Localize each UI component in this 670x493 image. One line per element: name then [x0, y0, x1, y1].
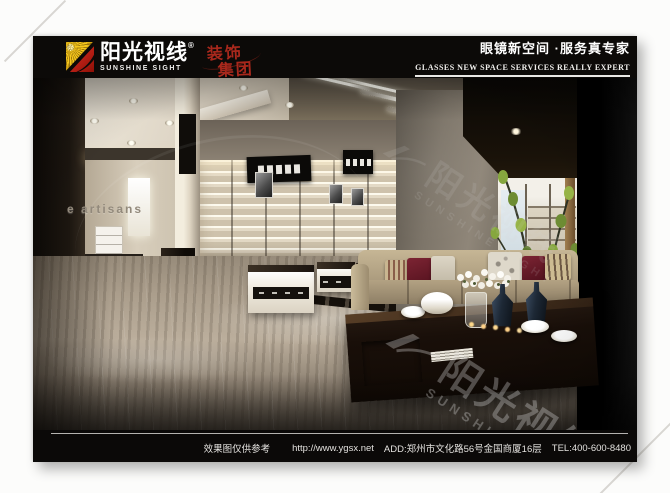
teacup — [551, 330, 577, 342]
sign-character-block — [353, 159, 357, 166]
footer-contact-info: 效果图仅供参考 http://www.ygsx.net ADD:郑州市文化路56… — [204, 441, 631, 455]
teacup — [521, 320, 549, 333]
sign-character-block — [367, 159, 371, 166]
stamp-line1: 装饰 — [206, 39, 243, 65]
footer-tel: TEL:400-600-8480 — [552, 443, 631, 454]
brand-name-cn: 阳光视线® — [100, 42, 195, 63]
tealight-candles — [469, 322, 529, 332]
downlight — [285, 102, 294, 108]
maroon-pillow — [522, 256, 546, 282]
registered-mark: ® — [188, 41, 195, 50]
footer-url: http://www.ygsx.net — [292, 443, 374, 454]
downlight — [239, 85, 248, 91]
footer-band: 效果图仅供参考 http://www.ygsx.net ADD:郑州市文化路56… — [33, 430, 637, 462]
sign-character-block — [360, 159, 364, 166]
header-slogan: 眼镜新空间 ·服务真专家 GLASSES NEW SPACE SERVICES … — [415, 38, 630, 77]
downlight — [90, 118, 99, 124]
store-interior-render: e artisans — [33, 78, 637, 430]
downlight — [127, 140, 136, 146]
sunshine-logo-icon — [66, 42, 94, 72]
downlight — [165, 120, 174, 126]
decoration-group-stamp: 装饰 集团 — [200, 36, 268, 77]
header-band: 阳光视线® SUNSHINE SIGHT 装饰 集团 眼镜新空间 ·服务真专家 … — [33, 36, 637, 78]
striped-pillow — [545, 254, 571, 280]
footer-address: ADD:郑州市文化路56号金国商厦16层 — [384, 441, 542, 455]
slogan-en: GLASSES NEW SPACE SERVICES REALLY EXPERT — [415, 63, 630, 77]
footer-separator-line — [51, 433, 628, 434]
brand-name-en: SUNSHINE SIGHT — [100, 65, 195, 72]
slogan-cn: 眼镜新空间 ·服务真专家 — [415, 38, 630, 57]
sofa-armrest — [351, 264, 369, 310]
coffee-table-base-opening — [362, 338, 423, 386]
promo-page: 阳光视线® SUNSHINE SIGHT 装饰 集团 眼镜新空间 ·服务真专家 … — [0, 0, 670, 493]
teapot — [421, 292, 453, 314]
footer-disclaimer: 效果图仅供参考 — [204, 441, 271, 455]
downlight — [129, 98, 138, 104]
render-photo: 阳光视线® SUNSHINE SIGHT 装饰 集团 眼镜新空间 ·服务真专家 … — [33, 36, 637, 462]
stamp-line2: 集团 — [217, 55, 254, 81]
logo-text: 阳光视线® SUNSHINE SIGHT — [100, 42, 195, 72]
logo-swoosh-curve — [60, 36, 101, 79]
